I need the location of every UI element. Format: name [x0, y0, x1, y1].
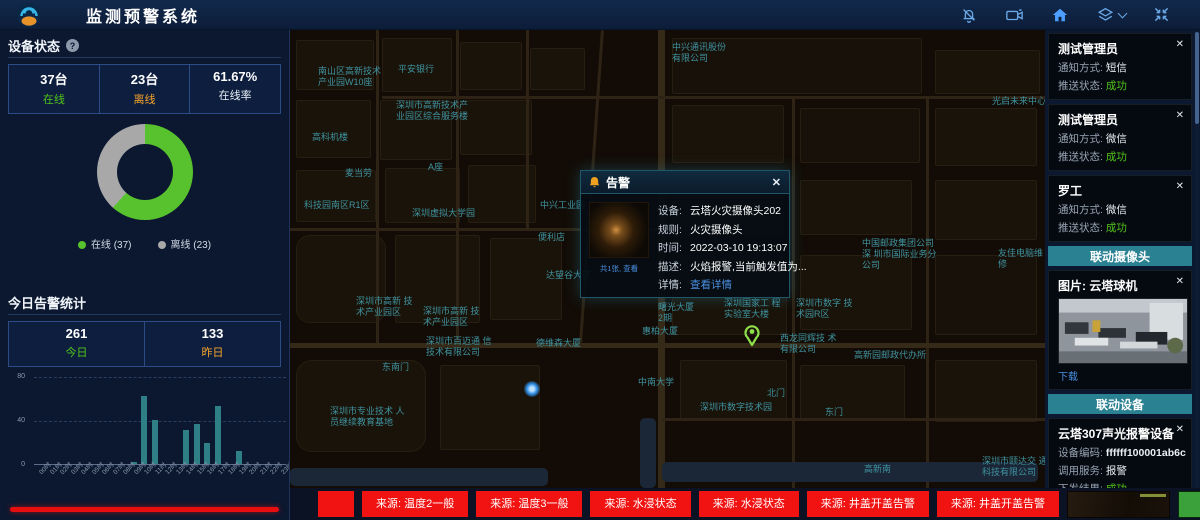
close-icon[interactable]: ✕ [772, 176, 781, 189]
map-place-label: 西龙同辉技 术有限公司 [780, 333, 838, 355]
map-place-label: 高科机楼 [312, 132, 348, 143]
linked-camera-card: ✕ 图片: 云塔球机 下载 [1048, 270, 1192, 390]
close-icon[interactable]: ✕ [1176, 424, 1184, 435]
today-alerts-title: 今日告警统计 [8, 293, 86, 312]
alert-source-card[interactable]: 来源: 温度2一般 [362, 491, 468, 517]
map-block [530, 48, 585, 90]
alert-thumbnail-green[interactable] [1178, 491, 1200, 518]
bar-15时 [194, 424, 200, 464]
alert-popup-body: 共1张, 查看 设备:云塔火灾摄像头202 规则:火灾摄像头 时间:2022-0… [581, 194, 789, 303]
legend-dot-green [78, 241, 86, 249]
page-title: 监测预警系统 [86, 3, 200, 27]
alert-location-pin-icon[interactable] [743, 322, 761, 351]
map-place-label: 德维森大厦 [536, 338, 581, 349]
alert-photo-column: 共1张, 查看 [589, 202, 649, 295]
linked-cameras-band: 联动摄像头 [1048, 246, 1192, 266]
map-road-major [290, 343, 1045, 348]
home-icon[interactable] [1051, 6, 1069, 24]
map-place-label: 深圳市数字 技术园R区 [796, 298, 854, 320]
map-road [382, 96, 1045, 99]
map-place-label: 中国邮政集团公司深 圳市国际业务分公司 [862, 238, 938, 271]
map-place-label: 中兴工业园 [540, 200, 585, 211]
device-status-donut-chart [97, 124, 193, 220]
stat-offline: 23台 离线 [99, 65, 190, 113]
chart-plot-area [34, 377, 286, 465]
right-scrollbar[interactable] [1195, 30, 1199, 488]
map-place-label: 高新南 [864, 464, 891, 475]
map-place-label: 便利店 [538, 232, 565, 243]
alert-row-detail: 详情:查看详情 [658, 276, 807, 295]
device-status-stats: 37台 在线 23台 离线 61.67% 在线率 [8, 64, 281, 114]
fullscreen-toggle-icon[interactable] [1153, 6, 1170, 23]
map-place-label: 曙光大厦2期 [658, 302, 694, 324]
stat-yesterday: 133 昨日 [144, 322, 280, 366]
map-block [935, 180, 1037, 240]
notification-card: ✕ 测试管理员 通知方式: 短信 推送状态: 成功 [1048, 33, 1192, 100]
hourly-alert-bar-chart: 04080 00时01时02时03时04时05时06时07时08时09时10时1… [8, 375, 281, 493]
chevron-down-icon [1118, 8, 1128, 18]
close-icon[interactable]: ✕ [1176, 39, 1184, 50]
alert-source-card[interactable]: 来源: 井盖开盖告警 [937, 491, 1059, 517]
stat-today: 261 今日 [9, 322, 144, 366]
today-alerts-header: 今日告警统计 [8, 291, 281, 315]
map-place-label: 深圳市颐达交 通科技有限公司 [982, 456, 1045, 478]
bar-14时 [183, 430, 189, 464]
bar-10时 [141, 396, 147, 464]
map-place-label: 中南大学 [638, 377, 674, 388]
map-place-label: 深圳市百迈通 信技术有限公司 [426, 336, 496, 358]
header-actions [960, 6, 1200, 24]
notification-card: ✕ 罗工 通知方式: 微信 推送状态: 成功 [1048, 175, 1192, 242]
map-place-label: 东南门 [382, 362, 409, 373]
bar-17时 [215, 406, 221, 464]
y-axis-tick: 40 [7, 417, 25, 424]
alert-source-card[interactable]: 来源: 井盖开盖告警 [807, 491, 929, 517]
stat-online: 37台 在线 [9, 65, 99, 113]
map-block [935, 108, 1037, 166]
layers-icon[interactable] [1096, 6, 1126, 24]
map-block [935, 360, 1037, 422]
app-logo-icon [16, 2, 42, 28]
notifications-muted-icon[interactable] [960, 6, 978, 24]
device-location-dot[interactable] [524, 381, 540, 397]
map-place-label: 南山区高新技术 产业园W10座 [318, 66, 390, 88]
map-place-label: 深圳虚拟大学园 [412, 208, 496, 219]
map-place-label: 友佳电脑维修 [998, 248, 1045, 270]
alert-row-description: 描述:火焰报警,当前触发值为... [658, 258, 807, 277]
map-block [800, 180, 912, 235]
close-icon[interactable]: ✕ [1176, 181, 1184, 192]
alarm-bell-icon [589, 176, 600, 188]
chart-bars [34, 376, 286, 464]
video-camera-icon[interactable] [1005, 6, 1024, 24]
linked-devices-band: 联动设备 [1048, 394, 1192, 414]
left-sidebar: 设备状态 ? 37台 在线 23台 离线 61.67% 在线率 在线 (37) [0, 30, 290, 520]
download-link[interactable]: 下载 [1058, 368, 1182, 383]
map-road [662, 418, 1045, 421]
device-status-header: 设备状态 ? [8, 34, 281, 58]
alert-source-card[interactable]: 来源: 温度3一般 [476, 491, 582, 517]
map-place-label: 光启未来中心大 [992, 96, 1045, 107]
linked-device-card: ✕ 云塔307声光报警设备 设备编码: ffffff100001ab6c 调用服… [1048, 418, 1192, 488]
notification-card: ✕ 测试管理员 通知方式: 微信 推送状态: 成功 [1048, 104, 1192, 171]
map-place-label: 惠柏大厦 [642, 326, 678, 337]
alert-popup-title: 告警 [606, 174, 630, 191]
legend-online[interactable]: 在线 (37) [78, 236, 132, 251]
chart-x-ticks: 00时01时02时03时04时05时06时07时08时09时10时11时12时1… [34, 467, 286, 493]
map-place-label: 科技园南区R1区 [304, 200, 388, 211]
donut-hole [117, 144, 173, 200]
bottom-alert-ticker: 来源: 温度2一般来源: 温度3一般来源: 水浸状态来源: 水浸状态来源: 井盖… [290, 488, 1200, 520]
map-road [456, 30, 459, 343]
top-header: 监测预警系统 [0, 0, 1200, 30]
map-place-label: 高新园邮政代办所 [854, 350, 946, 361]
map-block [800, 108, 920, 163]
map-block [460, 42, 522, 90]
alert-popup-header: 告警 ✕ [581, 171, 789, 194]
alert-thumbnail-dark[interactable] [1067, 491, 1170, 518]
stat-online-rate: 61.67% 在线率 [189, 65, 280, 113]
alert-detail-rows: 设备:云塔火灾摄像头202 规则:火灾摄像头 时间:2022-03-10 19:… [658, 202, 807, 295]
map-water [290, 468, 548, 486]
map-road [526, 30, 529, 228]
legend-offline[interactable]: 离线 (23) [158, 236, 212, 251]
donut-legend: 在线 (37) 离线 (23) [8, 236, 281, 251]
map-place-label: 深圳市高新 技术产业园区 [423, 306, 485, 328]
legend-dot-gray [158, 241, 166, 249]
alert-row-device: 设备:云塔火灾摄像头202 [658, 202, 807, 221]
right-sidebar: ✕ 测试管理员 通知方式: 短信 推送状态: 成功 ✕ 测试管理员 通知方式: … [1045, 30, 1195, 488]
map-block [935, 50, 1040, 94]
map-place-label: 北门 [767, 388, 785, 399]
photo-caption-link[interactable]: 共1张, 查看 [589, 263, 649, 274]
unprocessed-progress-bar [10, 507, 279, 512]
map-place-label: 平安银行 [398, 64, 434, 75]
alert-source-card[interactable]: 来源: 水浸状态 [699, 491, 799, 517]
y-axis-tick: 0 [7, 461, 25, 468]
city-map[interactable]: 中兴通讯股份 有限公司南山区高新技术 产业园W10座平安银行深圳市高新技术产 业… [290, 30, 1045, 488]
help-icon[interactable]: ? [66, 39, 79, 52]
map-water [640, 418, 656, 488]
camera-snapshot-image[interactable] [1058, 298, 1188, 364]
map-road [926, 96, 929, 488]
alert-source-card[interactable]: 来源: 水浸状态 [590, 491, 690, 517]
map-block [800, 365, 905, 420]
map-place-label: 中兴通讯股份 有限公司 [672, 42, 734, 64]
map-place-label: 深圳市高新技术产 业园区综合服务楼 [396, 100, 474, 122]
map-place-label: A座 [428, 162, 443, 173]
today-alerts-stats: 261 今日 133 昨日 [8, 321, 281, 367]
alert-source-card-partial[interactable] [318, 491, 354, 517]
alert-popup: 告警 ✕ 共1张, 查看 设备:云塔火灾摄像头202 规则:火灾摄像头 时间:2… [580, 170, 790, 298]
close-icon[interactable]: ✕ [1176, 276, 1184, 287]
bar-11时 [152, 420, 158, 464]
map-place-label: 深圳市数字技术园 [700, 402, 796, 413]
y-axis-tick: 80 [7, 373, 25, 380]
alert-row-time: 时间:2022-03-10 19:13:07 [658, 239, 807, 258]
alert-source-cards: 来源: 温度2一般来源: 温度3一般来源: 水浸状态来源: 水浸状态来源: 井盖… [362, 491, 1059, 517]
view-detail-link[interactable]: 查看详情 [690, 279, 732, 291]
map-block [440, 365, 540, 450]
map-place-label: 深圳市专业技术 人员继续教育基地 [330, 406, 410, 428]
device-status-title: 设备状态 [8, 36, 60, 55]
app-root: 监测预警系统 [0, 0, 1200, 520]
map-place-label: 深圳市高新 技术产业园区 [356, 296, 418, 318]
fire-alert-photo[interactable] [589, 202, 649, 258]
camera-osd-text [1140, 494, 1166, 497]
scrollbar-thumb[interactable] [1195, 32, 1199, 124]
alert-row-rule: 规则:火灾摄像头 [658, 221, 807, 240]
map-place-label: 东门 [825, 407, 843, 418]
close-icon[interactable]: ✕ [1176, 110, 1184, 121]
map-block [296, 100, 371, 158]
map-place-label: 麦当劳 [345, 168, 372, 179]
map-block [672, 105, 784, 163]
